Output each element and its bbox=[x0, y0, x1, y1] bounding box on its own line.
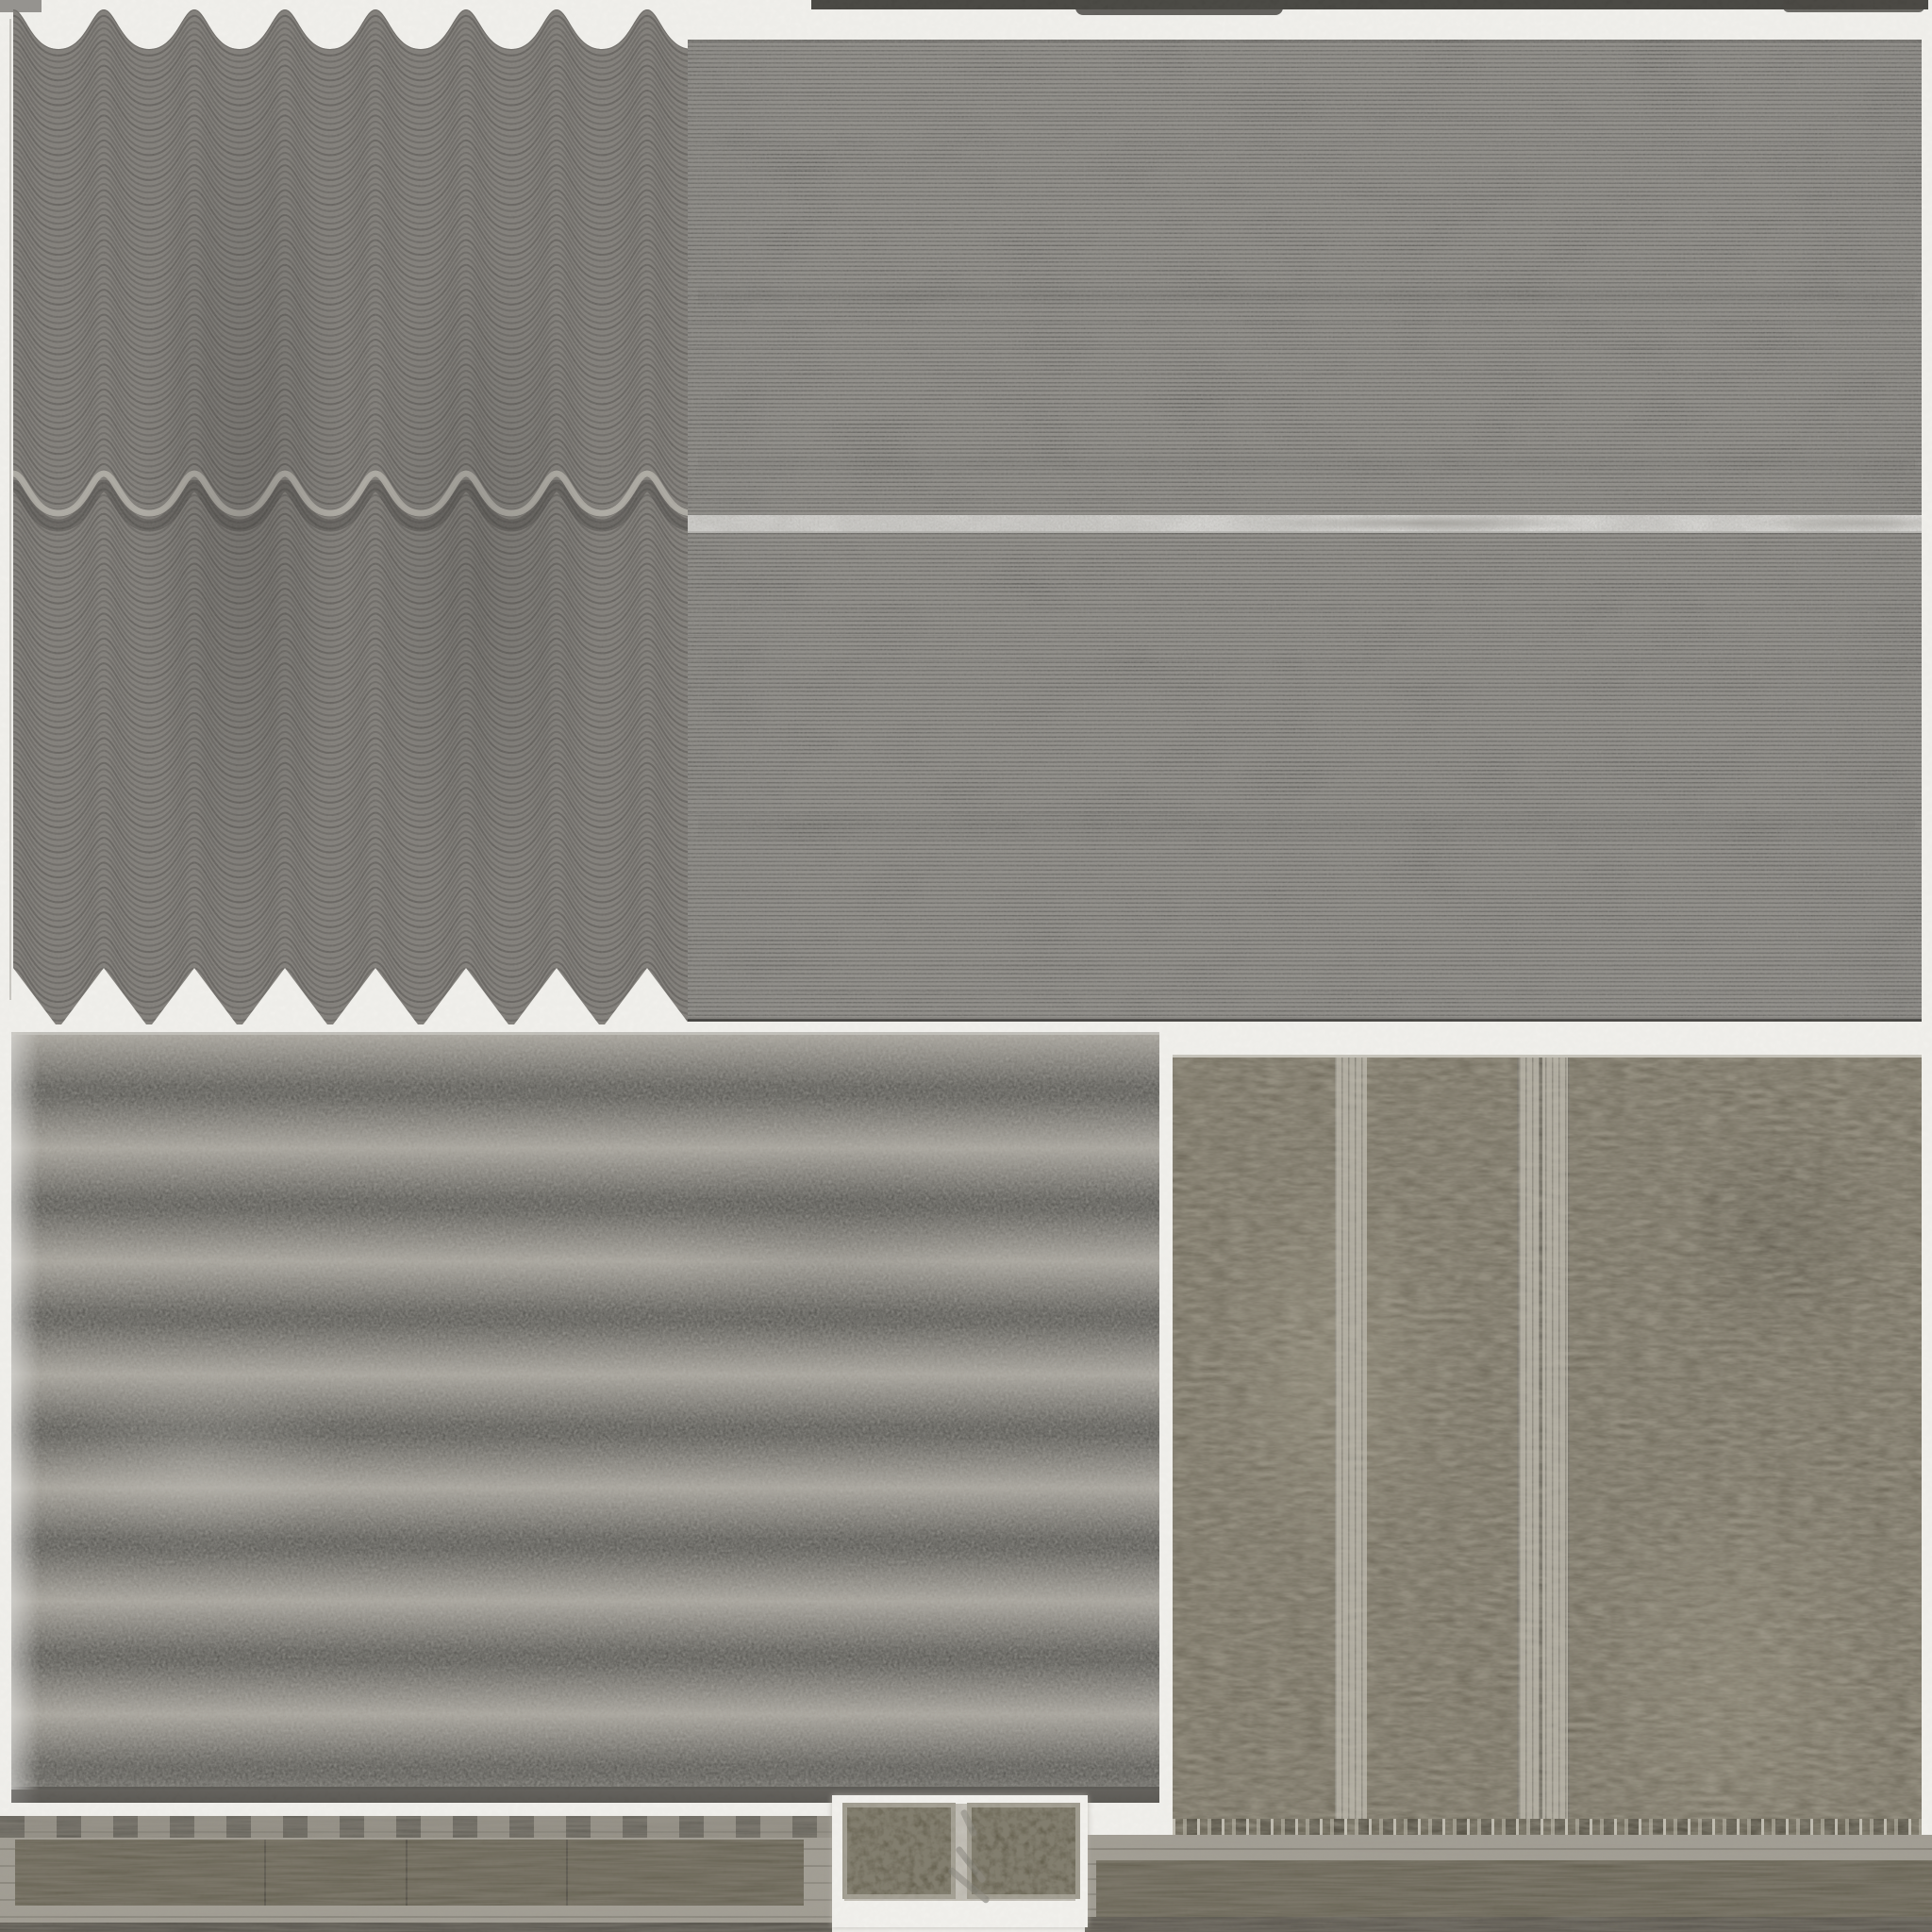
painted-olive-band bbox=[15, 1840, 804, 1906]
plank-seam bbox=[264, 1840, 266, 1906]
rib-panel-smudge bbox=[698, 453, 1915, 474]
dark-square-left bbox=[847, 1807, 951, 1894]
rib-panel-smudge bbox=[698, 283, 1915, 308]
corrugated-panel-light-patch bbox=[57, 1368, 340, 1557]
plank-seam bbox=[566, 1840, 568, 1906]
wood-beam-vertical bbox=[1517, 1058, 1570, 1854]
painted-olive-band bbox=[1096, 1860, 1932, 1917]
texture-atlas-canvas bbox=[0, 0, 1932, 1932]
olive-dark-patch bbox=[1663, 1114, 1890, 1359]
wavy-sheet-shading bbox=[142, 57, 349, 953]
dark-square-right bbox=[972, 1807, 1075, 1894]
white-divider-line bbox=[688, 515, 1922, 531]
ribbed-metal-panel-lower bbox=[688, 531, 1922, 1022]
wood-beam-vertical bbox=[1335, 1058, 1367, 1854]
wood-plank-strip-bottom-right bbox=[1085, 1835, 1932, 1932]
wood-dark-bottom-edge bbox=[0, 1923, 832, 1932]
wood-plank-strip-bottom-left bbox=[0, 1816, 832, 1932]
dark-strip-top-edge bbox=[811, 0, 1928, 9]
dark-strip-blob bbox=[1783, 0, 1924, 12]
ribbed-metal-panel-upper bbox=[688, 40, 1922, 517]
wavy-sheet-left-edge bbox=[9, 19, 11, 1000]
wood-dark-streak-band bbox=[0, 1816, 832, 1838]
rib-panel-smudge bbox=[698, 811, 1915, 840]
wavy-sheet-shading bbox=[358, 236, 604, 896]
plank-seam bbox=[406, 1840, 408, 1906]
olive-light-patch bbox=[1210, 1171, 1456, 1567]
corrugated-panel-dark-patch bbox=[660, 1132, 1000, 1358]
olive-stud-wall-section bbox=[1173, 1055, 1922, 1854]
dark-strip-blob bbox=[1075, 0, 1283, 15]
white-framed-double-square-element bbox=[832, 1795, 1088, 1927]
wood-dark-bottom-edge bbox=[1085, 1917, 1932, 1932]
wood-beam-center-split bbox=[1540, 1058, 1542, 1854]
